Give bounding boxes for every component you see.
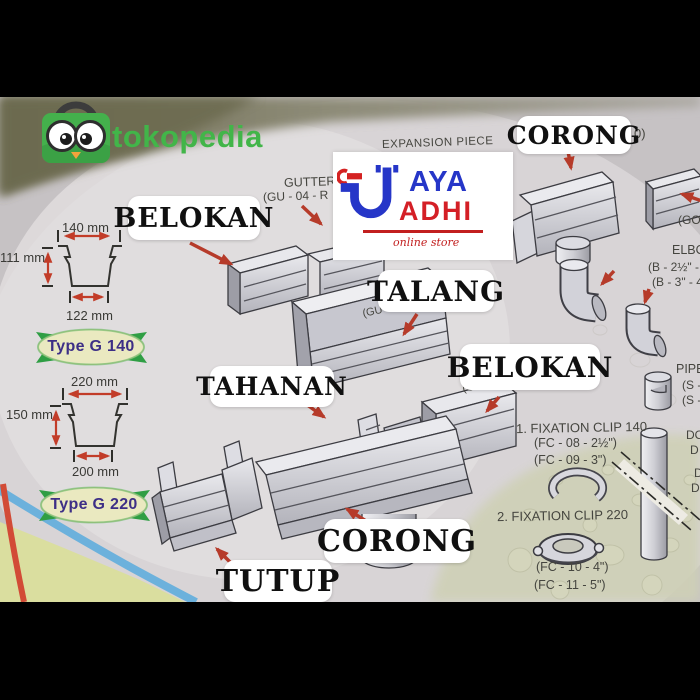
callout-belokan-right: BELOKAN <box>460 344 600 390</box>
expansion-piece-label: EXPANSION PIECE <box>382 135 494 151</box>
g140-type-label: Type G 140 <box>45 338 137 356</box>
elbow-code-1: (B - 2½" - <box>648 260 699 274</box>
pipe-code-1: (S - <box>682 378 700 392</box>
callout-talang: TALANG <box>378 270 494 312</box>
fixation-140-code-1: (FC - 08 - 2½") <box>534 436 617 450</box>
tokopedia-logo-text: tokopedia <box>112 119 263 155</box>
product-image: tokopedia EXPANSION PIECE GUTTER (GU - 0… <box>0 0 700 700</box>
callout-tahanan: TAHANAN <box>210 366 334 407</box>
go-code-fragment: (GO <box>678 213 700 227</box>
down-pipe-fragment-1: DO <box>686 428 700 442</box>
down-pipe-fragment-2: D <box>690 443 699 457</box>
g220-top-width: 220 mm <box>71 374 118 389</box>
elbow-code-2: (B - 3" - 4 <box>652 275 700 289</box>
text-overlay: tokopedia EXPANSION PIECE GUTTER (GU - 0… <box>0 0 700 700</box>
g140-top-width: 140 mm <box>62 220 109 235</box>
pipe-code-2: (S - <box>682 393 700 407</box>
fixation-220-title: 2. FIXATION CLIP 220 <box>497 507 628 524</box>
callout-corong-bottom: CORONG <box>324 519 470 563</box>
g220-bottom-width: 200 mm <box>72 464 119 479</box>
store-name-bottom: ADHI <box>399 196 473 227</box>
wrench-icon <box>338 171 347 184</box>
callout-corong-top: CORONG <box>517 116 631 154</box>
g220-type-label: Type G 220 <box>48 496 140 514</box>
store-tagline: online store <box>393 236 459 249</box>
down-pipe-fragment-3: DO <box>694 466 700 480</box>
pipe-label: PIPE <box>676 362 700 376</box>
letterbox-top <box>0 0 700 97</box>
fixation-220-code-2: (FC - 11 - 5") <box>534 578 606 592</box>
g140-height: 111 mm <box>0 250 45 265</box>
callout-tutup: TUTUP <box>224 560 332 602</box>
fixation-140-title: 1. FIXATION CLIP 140 <box>516 419 647 436</box>
g140-bottom-width: 122 mm <box>66 308 113 323</box>
g220-height: 150 mm <box>6 407 53 422</box>
store-name-top: AYA <box>409 166 468 199</box>
fixation-140-code-2: (FC - 09 - 3") <box>534 453 607 467</box>
down-pipe-fragment-4: DO <box>691 481 700 495</box>
callout-belokan-left: BELOKAN <box>128 196 260 240</box>
store-logo-box: AYA ADHI online store <box>333 152 513 260</box>
store-logo-underline <box>363 230 483 233</box>
elbow-label: ELBOW <box>672 243 700 257</box>
letterbox-bottom <box>0 602 700 700</box>
fixation-220-code-1: (FC - 10 - 4") <box>536 560 609 574</box>
